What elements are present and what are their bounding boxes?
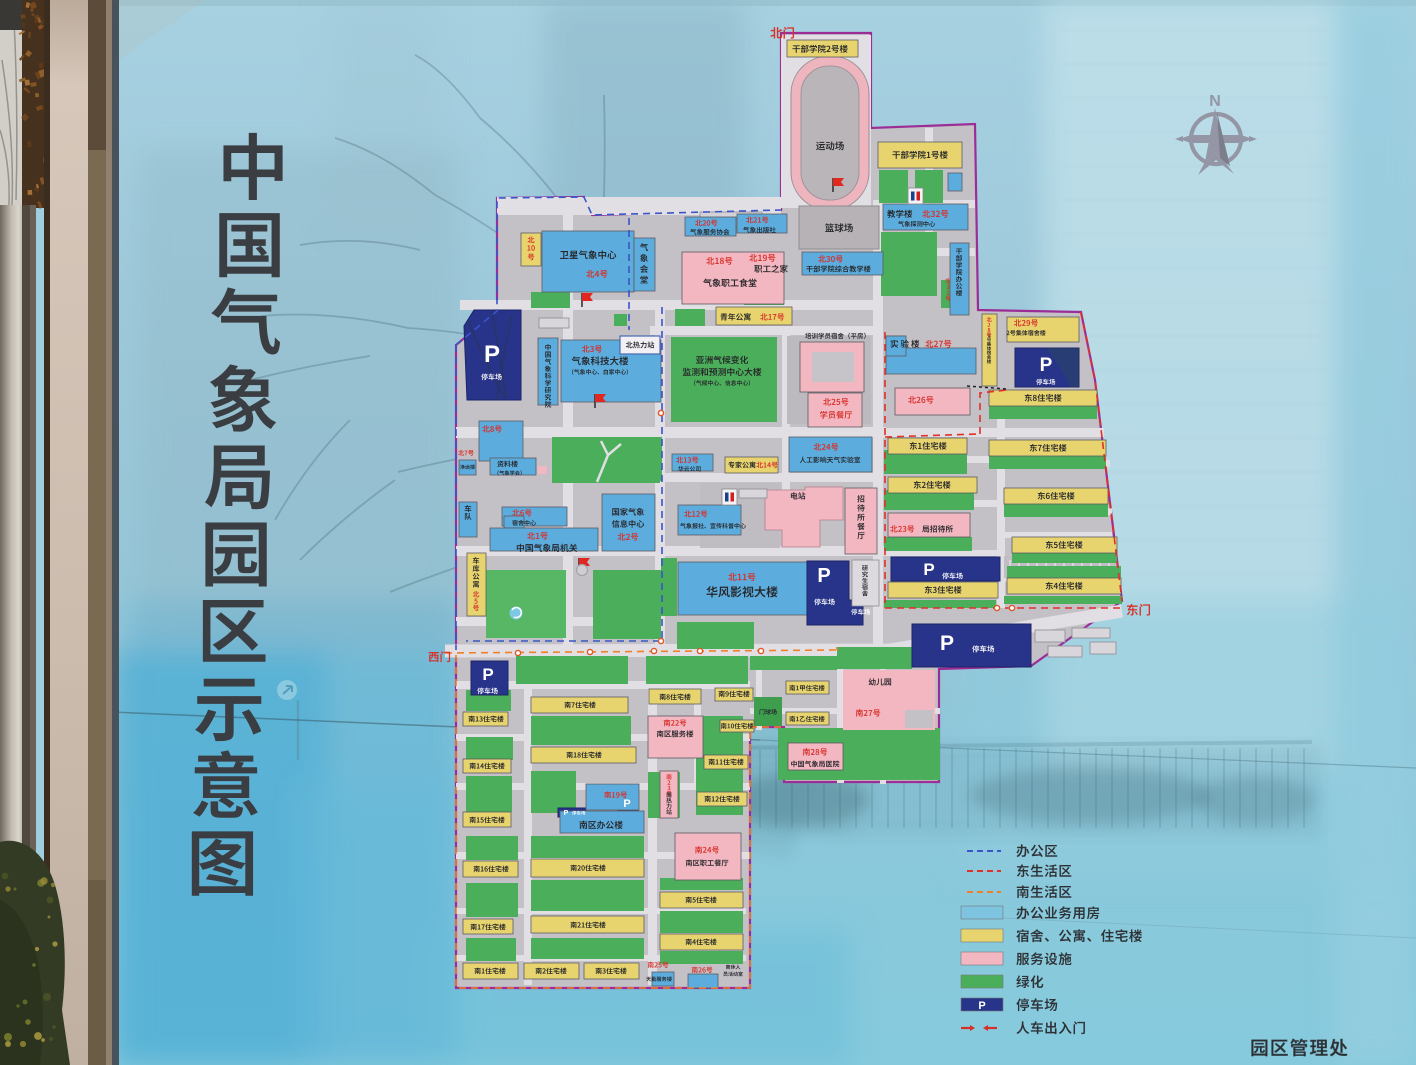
svg-text:P: P	[940, 632, 954, 655]
svg-text:P: P	[564, 810, 569, 817]
svg-text:P: P	[978, 1000, 985, 1012]
svg-text:P: P	[482, 665, 493, 684]
svg-text:P: P	[623, 798, 630, 810]
svg-text:P: P	[923, 560, 934, 579]
svg-text:P: P	[1040, 355, 1053, 376]
svg-text:P: P	[484, 341, 500, 368]
svg-text:P: P	[817, 565, 830, 587]
svg-text:N: N	[1209, 93, 1221, 110]
